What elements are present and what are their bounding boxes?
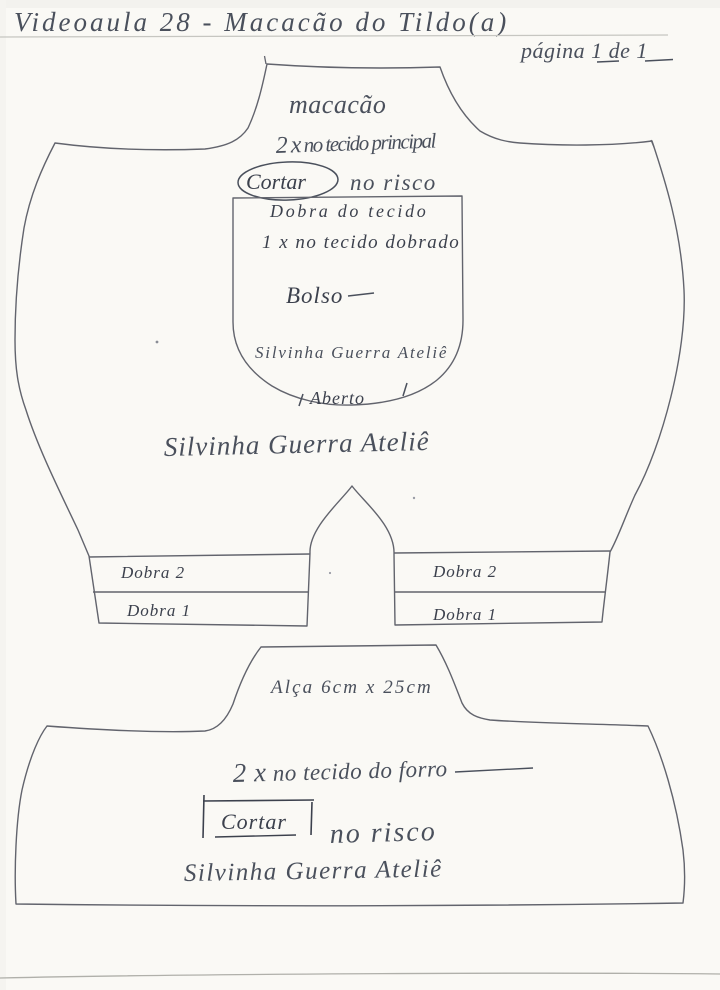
svg-text:no risco: no risco: [350, 170, 437, 195]
svg-text:Cortar: Cortar: [246, 169, 306, 194]
svg-text:Cortar: Cortar: [221, 809, 287, 834]
svg-text:no risco: no risco: [329, 816, 437, 850]
svg-text:Videoaula 28 - Macacão do Tild: Videoaula 28 - Macacão do Tildo(a): [14, 7, 509, 37]
svg-text:Dobra 2: Dobra 2: [432, 562, 497, 581]
svg-text:Dobra do tecido: Dobra do tecido: [269, 201, 428, 221]
svg-text:macacão: macacão: [289, 90, 386, 119]
svg-text:1 x no tecido dobrado: 1 x no tecido dobrado: [262, 232, 460, 253]
svg-text:Dobra 1: Dobra 1: [432, 605, 497, 624]
svg-text:Aberto: Aberto: [309, 388, 365, 408]
svg-text:Silvinha Guerra Ateliê: Silvinha Guerra Ateliê: [184, 855, 443, 887]
svg-text:página 1 de 1: página 1 de 1: [519, 38, 648, 63]
svg-text:Alça 6cm x 25cm: Alça 6cm x 25cm: [269, 677, 433, 698]
svg-text:Silvinha Guerra Ateliê: Silvinha Guerra Ateliê: [163, 426, 430, 462]
svg-text:Dobra 2: Dobra 2: [120, 563, 185, 582]
svg-text:Dobra 1: Dobra 1: [126, 601, 191, 620]
svg-text:Silvinha Guerra Ateliê: Silvinha Guerra Ateliê: [255, 343, 448, 362]
svg-text:Bolso: Bolso: [286, 283, 343, 308]
